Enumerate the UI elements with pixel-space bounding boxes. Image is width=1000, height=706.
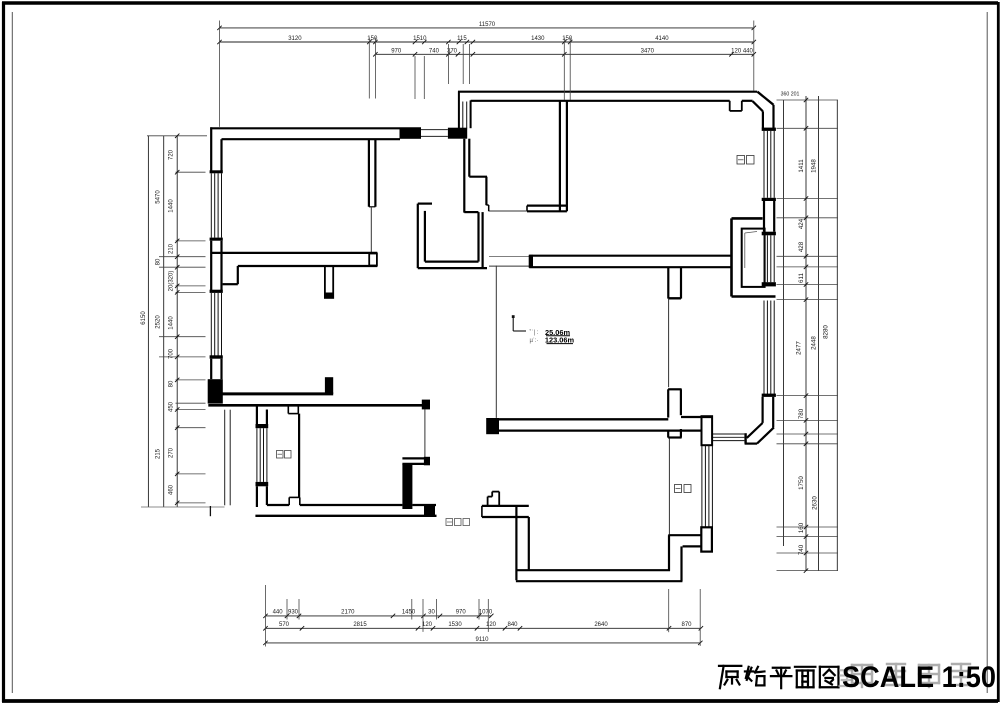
- svg-text:150: 150: [367, 36, 378, 42]
- svg-text:4140: 4140: [655, 36, 669, 42]
- svg-text:3120: 3120: [288, 36, 302, 42]
- svg-text:700: 700: [169, 348, 175, 359]
- svg-text:SCALE 1:50: SCALE 1:50: [842, 661, 996, 694]
- svg-text:120: 120: [422, 622, 433, 628]
- svg-text:440: 440: [273, 610, 284, 616]
- svg-text:3470: 3470: [641, 48, 655, 54]
- svg-text:1530: 1530: [448, 622, 462, 628]
- svg-text:970: 970: [391, 48, 402, 54]
- svg-text:80: 80: [169, 380, 175, 387]
- svg-text:720: 720: [169, 149, 175, 160]
- svg-text:1430: 1430: [531, 36, 545, 42]
- svg-text:80: 80: [155, 258, 161, 265]
- svg-text:2640: 2640: [594, 622, 608, 628]
- svg-text:30: 30: [428, 610, 435, 616]
- svg-text:1070: 1070: [479, 610, 493, 616]
- svg-text:150: 150: [562, 36, 573, 42]
- svg-text:1440: 1440: [169, 199, 175, 213]
- svg-text:9110: 9110: [476, 637, 490, 643]
- svg-text:2477: 2477: [796, 341, 803, 355]
- svg-text:1440: 1440: [169, 316, 175, 330]
- svg-text:20(320): 20(320): [169, 271, 175, 292]
- svg-text:2170: 2170: [341, 610, 355, 616]
- svg-text:970: 970: [456, 610, 467, 616]
- svg-text:450: 450: [169, 401, 175, 412]
- svg-text:2815: 2815: [353, 622, 367, 628]
- svg-text:2448: 2448: [811, 336, 818, 350]
- svg-text:1411: 1411: [798, 159, 805, 173]
- svg-text:870: 870: [681, 622, 692, 628]
- svg-text:120: 120: [486, 622, 497, 628]
- svg-text:8280: 8280: [823, 325, 830, 339]
- svg-text:840: 840: [507, 622, 518, 628]
- svg-text:780: 780: [798, 408, 805, 419]
- svg-text:740: 740: [798, 544, 805, 555]
- svg-text:160: 160: [798, 522, 805, 533]
- svg-text:115: 115: [457, 36, 467, 42]
- svg-text:428: 428: [798, 241, 805, 252]
- svg-text:210: 210: [169, 243, 175, 254]
- svg-text:570: 570: [279, 622, 290, 628]
- svg-text:120 440: 120 440: [731, 48, 753, 54]
- svg-text:360 201: 360 201: [781, 92, 800, 98]
- svg-text:270: 270: [169, 447, 175, 458]
- svg-text:611: 611: [798, 273, 805, 283]
- svg-text:740: 740: [429, 48, 440, 54]
- svg-text:460: 460: [169, 484, 175, 495]
- svg-text:424: 424: [798, 218, 805, 229]
- svg-text:6150: 6150: [141, 311, 147, 325]
- svg-text:215: 215: [155, 448, 161, 459]
- svg-text:1510: 1510: [413, 36, 427, 42]
- svg-text:930: 930: [288, 610, 299, 616]
- svg-text:1750: 1750: [798, 476, 805, 490]
- svg-text:2520: 2520: [155, 315, 161, 329]
- svg-text:11570: 11570: [479, 22, 496, 28]
- svg-text:˚ˈ| :: ˚ˈ| :: [530, 329, 539, 336]
- svg-text:1948: 1948: [811, 159, 818, 173]
- svg-text:µˈ:·: µˈ:·: [529, 338, 538, 344]
- svg-text:1450: 1450: [402, 610, 416, 616]
- svg-text:2630: 2630: [812, 496, 819, 510]
- svg-text:5470: 5470: [155, 190, 161, 204]
